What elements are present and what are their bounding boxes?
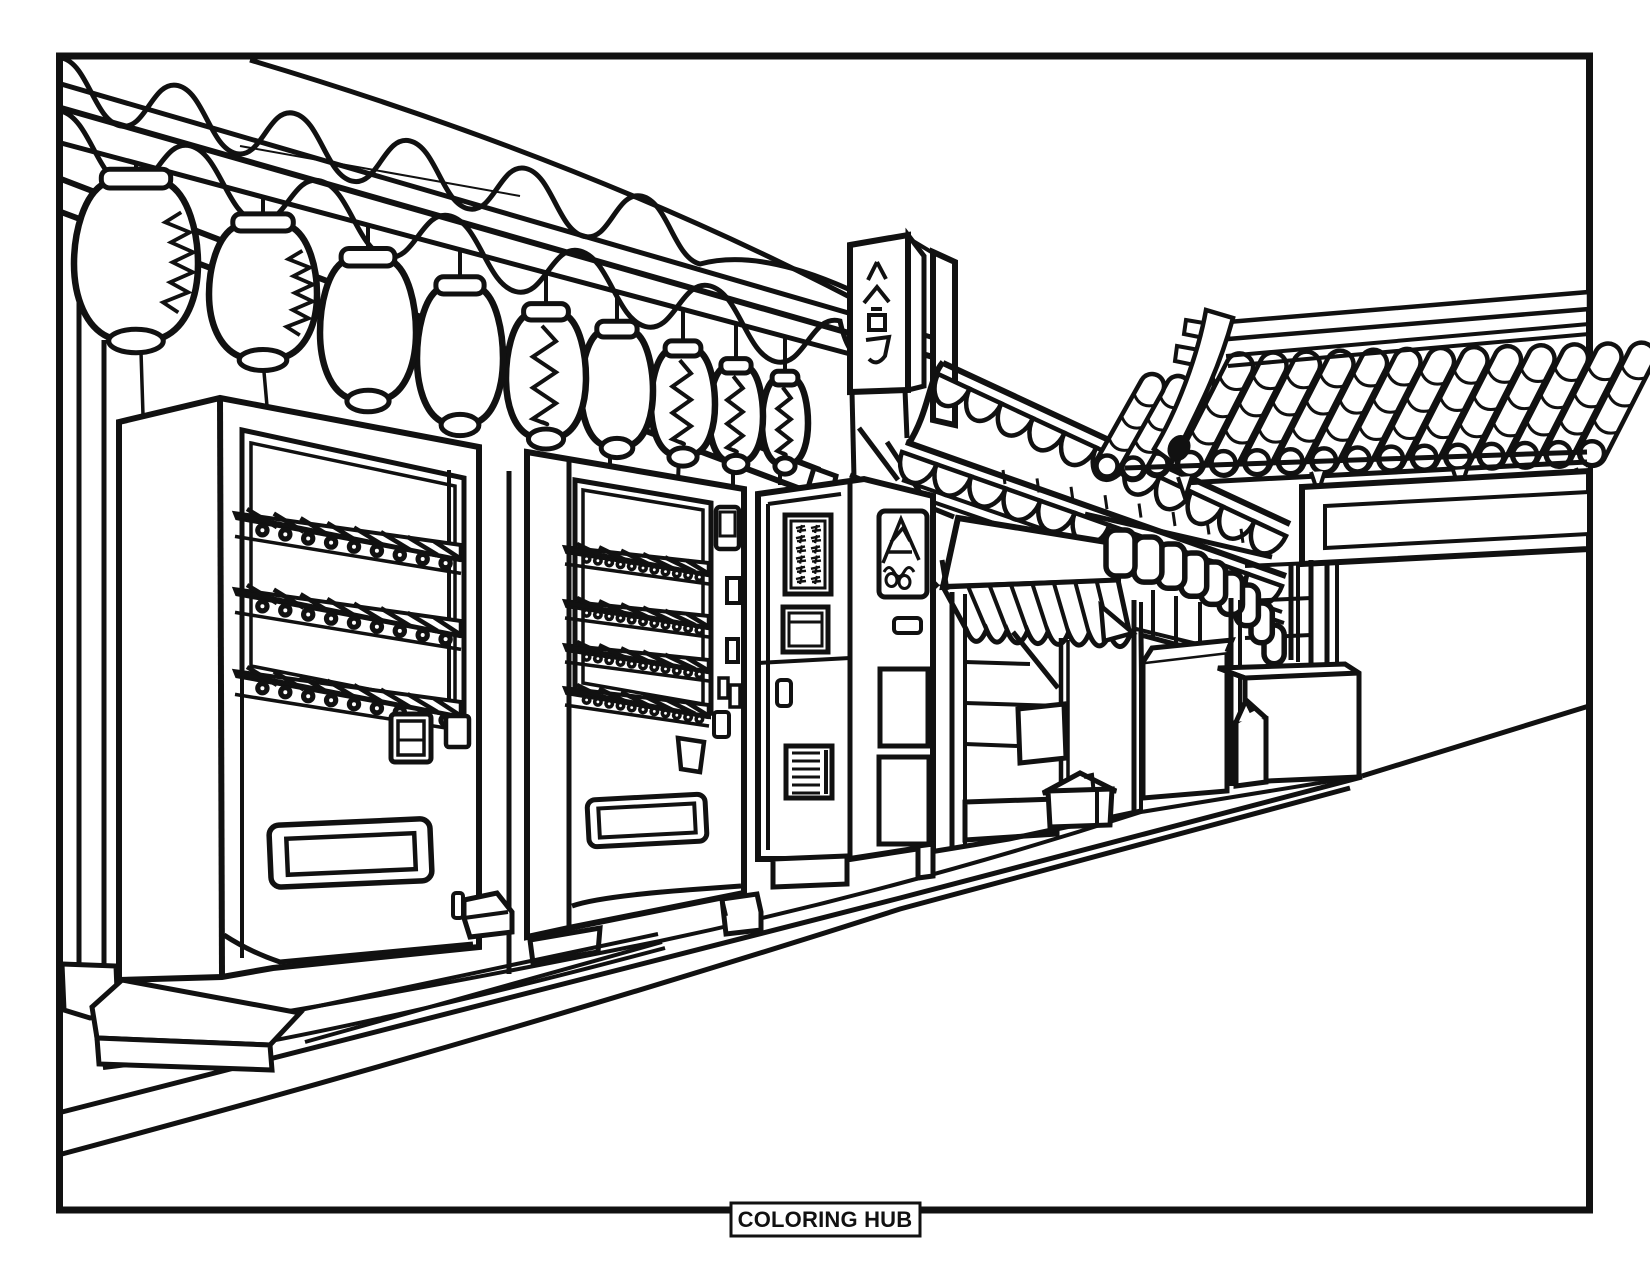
svg-text:COLORING HUB: COLORING HUB — [738, 1207, 913, 1232]
